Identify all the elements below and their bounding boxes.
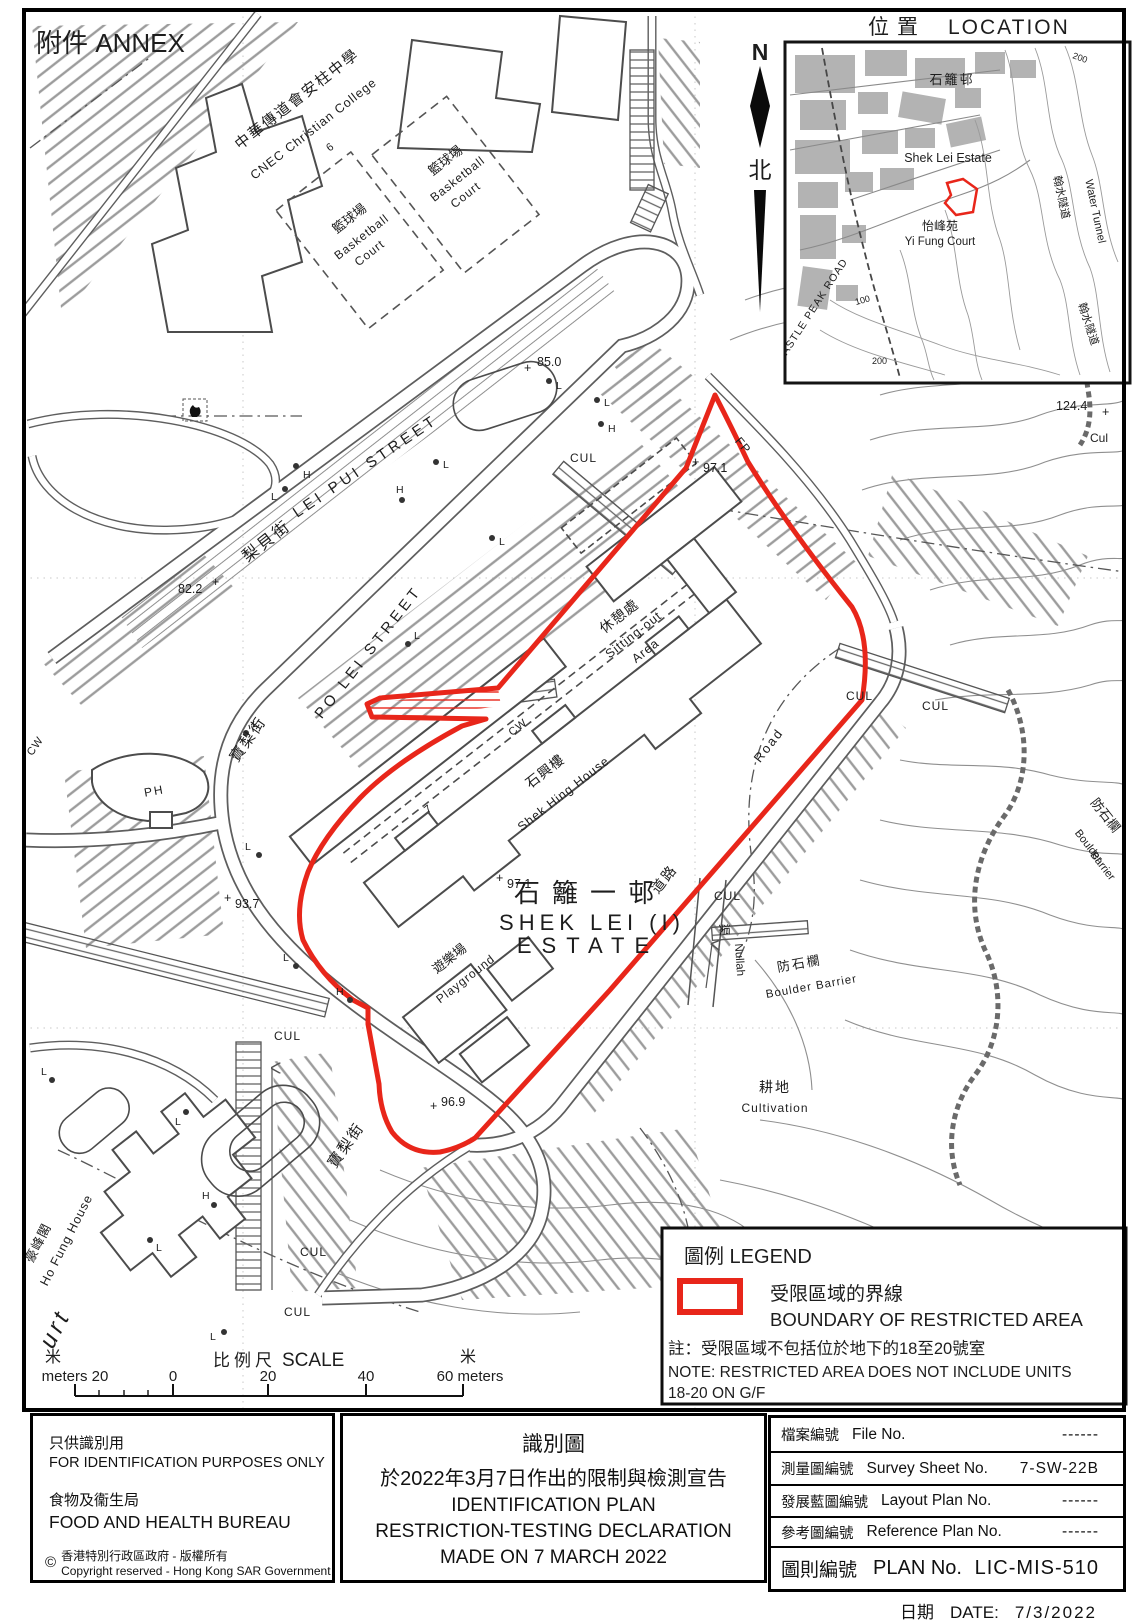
- copyright-block: © 香港特別行政區政府 - 版權所有 Copyright reserved - …: [45, 1547, 332, 1578]
- row-en: Layout Plan No.: [881, 1492, 991, 1510]
- row-value: ------: [1062, 1492, 1113, 1510]
- inset-title-zh: 位置: [868, 16, 926, 39]
- label-nullah-zh: 渠: [717, 923, 732, 936]
- label-cw2: CW: [25, 735, 46, 759]
- spot-124: 124.4: [1056, 399, 1087, 413]
- row-zh: 測量圖編號: [781, 1458, 854, 1479]
- note-zh1: 只供識別用: [49, 1432, 332, 1453]
- scale-label-en: SCALE: [282, 1350, 344, 1371]
- legend-boundary-zh: 受限區域的界線: [770, 1283, 903, 1305]
- label-cnec-no: 6: [324, 141, 336, 154]
- scale-m-right: 米: [460, 1348, 476, 1366]
- label-cultivation-zh: 耕地: [759, 1079, 791, 1095]
- table-row-plan-no: 圖則編號 PLAN No. LIC-MIS-510: [771, 1548, 1123, 1589]
- inset-label-yi-fung-en: Yi Fung Court: [905, 236, 976, 248]
- date-value: 7/3/2022: [1015, 1603, 1097, 1622]
- plus-mark: +: [524, 361, 531, 375]
- marker-l: L: [283, 952, 289, 964]
- plus-mark: +: [1102, 405, 1109, 419]
- label-estate-zh: 石籬一邨: [514, 878, 666, 908]
- marker-l: L: [175, 1116, 181, 1128]
- row-zh: 檔案編號: [781, 1424, 839, 1445]
- date-en: DATE:: [950, 1603, 999, 1622]
- marker-l: L: [210, 1331, 216, 1343]
- scale-tick-40: 40: [358, 1368, 375, 1385]
- row-value: ------: [1062, 1523, 1113, 1541]
- copyright-zh: 香港特別行政區政府 - 版權所有: [61, 1547, 330, 1564]
- row-en: Reference Plan No.: [867, 1523, 1002, 1541]
- plus-mark: +: [692, 455, 699, 469]
- label-road-en: Road: [751, 725, 787, 765]
- legend-note-zh: 註：受限區域不包括位於地下的18至20號室: [668, 1339, 985, 1358]
- spot-82: 82.2: [178, 582, 202, 596]
- plus-mark: +: [496, 871, 503, 885]
- marker-l: L: [41, 1066, 47, 1078]
- date-zh: 日期: [900, 1598, 934, 1622]
- scale-tick-right: 60 meters: [437, 1368, 504, 1385]
- marker-h: H: [396, 484, 404, 496]
- label-boulder-barrier2-zh: 防石欄: [1088, 795, 1124, 835]
- plus-mark: +: [224, 891, 231, 905]
- spot-96: 96.9: [441, 1095, 465, 1109]
- spot-97a: 97.1: [703, 461, 727, 475]
- label-seven: 7: [422, 803, 434, 816]
- north-arrow: N 北: [749, 39, 772, 312]
- row-zh: 參考圖編號: [781, 1522, 854, 1543]
- inset-contour-200b: 200: [872, 356, 887, 366]
- copyright-en: Copyright reserved - Hong Kong SAR Gover…: [61, 1564, 330, 1578]
- table-row-reference-plan: 參考圖編號 Reference Plan No. ------: [771, 1518, 1123, 1548]
- north-zh-label: 北: [749, 157, 772, 183]
- label-court-fragment: urt: [34, 1305, 76, 1353]
- north-n-label: N: [752, 39, 769, 65]
- annex-title: 附件 ANNEX: [36, 28, 185, 58]
- label-cul: CUL: [570, 451, 597, 465]
- table-row-survey-sheet: 測量圖編號 Survey Sheet No. 7-SW-22B: [771, 1453, 1123, 1486]
- identification-note-box: 只供識別用 FOR IDENTIFICATION PURPOSES ONLY 食…: [30, 1413, 335, 1583]
- note-en1: FOR IDENTIFICATION PURPOSES ONLY: [49, 1455, 332, 1471]
- label-estate-en1: SHEK LEI (I): [499, 910, 685, 935]
- row-en: PLAN No.: [873, 1557, 962, 1580]
- table-row-file-no: 檔案編號 File No. ------: [771, 1418, 1123, 1453]
- scale-m-left: 米: [45, 1348, 61, 1366]
- label-boulder-barrier-zh: 防石欄: [776, 952, 823, 975]
- marker-h: H: [608, 423, 616, 435]
- label-cul: CUL: [284, 1305, 311, 1319]
- marker-l: L: [499, 536, 505, 548]
- spot-93: 93.7: [235, 897, 259, 911]
- inset-label-shek-lei-zh: 石籬邨: [929, 72, 974, 87]
- plus-mark: +: [212, 575, 219, 589]
- label-cul: CUL: [846, 689, 873, 703]
- row-en: Survey Sheet No.: [867, 1460, 988, 1478]
- marker-l: L: [271, 491, 277, 503]
- table-row-layout-plan: 發展藍圖編號 Layout Plan No. ------: [771, 1486, 1123, 1518]
- marker-l: L: [443, 459, 449, 471]
- marker-h: H: [202, 1190, 210, 1202]
- row-en: File No.: [852, 1426, 905, 1444]
- scale-tick-left: meters 20: [42, 1368, 109, 1385]
- spot-85: 85.0: [537, 355, 561, 369]
- plus-mark: +: [430, 1099, 437, 1113]
- identification-plan-page: H L L H L L L L H L L L H L L H L L 附件 A…: [0, 0, 1148, 1622]
- date-line: 日期 DATE: 7/3/2022: [900, 1598, 1097, 1622]
- reference-table: 檔案編號 File No. ------ 測量圖編號 Survey Sheet …: [768, 1415, 1126, 1592]
- marker-l: L: [414, 630, 420, 642]
- inset-label-yi-fung-zh: 怡峰苑: [922, 219, 958, 233]
- legend-boundary-en: BOUNDARY OF RESTRICTED AREA: [770, 1309, 1084, 1330]
- marker-l: L: [556, 380, 562, 392]
- row-value: LIC-MIS-510: [975, 1557, 1113, 1580]
- marker-h: H: [336, 986, 344, 998]
- scale-bar: 米 米 比例尺 SCALE meters 20 0 20 40 60 meter…: [42, 1348, 504, 1396]
- bureau-zh: 食物及衞生局: [49, 1489, 332, 1510]
- plan-title-en1: IDENTIFICATION PLAN: [343, 1495, 764, 1517]
- plan-title-zh1: 識別圖: [343, 1428, 764, 1458]
- legend-note-en1: NOTE: RESTRICTED AREA DOES NOT INCLUDE U…: [668, 1364, 1072, 1381]
- inset-title-en: LOCATION: [948, 16, 1070, 39]
- scale-tick-0: 0: [169, 1368, 177, 1385]
- location-inset: 位置 LOCATION: [774, 16, 1130, 383]
- plan-title-en3: MADE ON 7 MARCH 2022: [343, 1547, 764, 1569]
- label-nullah-en: Nullah: [732, 943, 746, 976]
- inset-label-shek-lei-en: Shek Lei Estate: [904, 151, 992, 165]
- label-estate-en2: ESTATE: [517, 933, 659, 958]
- map-canvas: H L L H L L L L H L L L H L L H L L 附件 A…: [0, 0, 1148, 1622]
- row-value: 7-SW-22B: [1020, 1460, 1113, 1478]
- label-cul: CUL: [300, 1245, 327, 1259]
- marker-l: L: [156, 1242, 162, 1254]
- label-cul: CUL: [714, 889, 741, 903]
- row-zh: 發展藍圖編號: [781, 1491, 868, 1512]
- legend-note-en2: 18-20 ON G/F: [668, 1385, 765, 1402]
- legend-title: 圖例 LEGEND: [684, 1245, 812, 1268]
- label-cultivation-en: Cultivation: [741, 1101, 808, 1115]
- label-cul: CUL: [274, 1029, 301, 1043]
- legend-box: 圖例 LEGEND 受限區域的界線 BOUNDARY OF RESTRICTED…: [662, 1228, 1126, 1404]
- plan-title-en2: RESTRICTION-TESTING DECLARATION: [343, 1521, 764, 1543]
- label-cul: CUL: [922, 699, 949, 713]
- marker-l: L: [604, 397, 610, 409]
- row-zh: 圖則編號: [781, 1555, 857, 1582]
- scale-tick-20: 20: [260, 1368, 277, 1385]
- label-boulder-barrier-en: Boulder Barrier: [765, 973, 858, 1001]
- label-cw: CW: [506, 717, 529, 739]
- bureau-en: FOOD AND HEALTH BUREAU: [49, 1512, 332, 1533]
- spot-97b: 97.1: [507, 877, 531, 891]
- north-diamond: [750, 66, 770, 148]
- plan-title-zh2: 於2022年3月7日作出的限制與檢測宣告: [343, 1462, 764, 1491]
- marker-l: L: [245, 841, 251, 853]
- label-road-zh: 道路: [648, 861, 680, 896]
- copyright-symbol: ©: [45, 1554, 56, 1571]
- fire-hydrant-symbol: [183, 399, 207, 421]
- row-value: ------: [1062, 1426, 1113, 1444]
- label-cul-cap: Cul: [1090, 431, 1108, 445]
- marker-h: H: [303, 469, 311, 481]
- plan-title-box: 識別圖 於2022年3月7日作出的限制與檢測宣告 IDENTIFICATION …: [340, 1413, 767, 1583]
